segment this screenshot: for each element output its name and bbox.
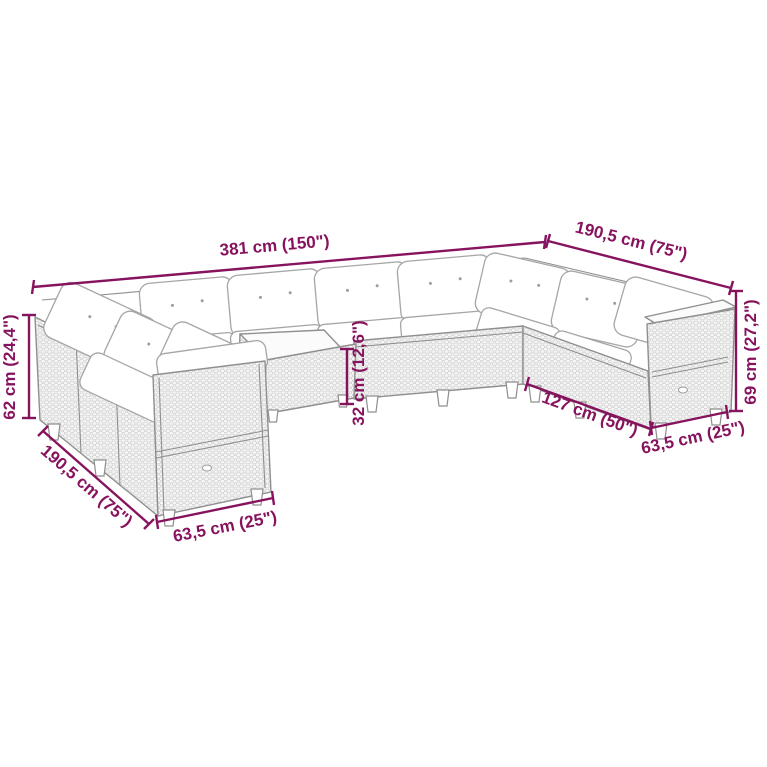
sofa-leg [94, 460, 106, 476]
dimension-label: 62 cm (24,4") [0, 314, 19, 419]
dimension-label: 63,5 cm (25") [171, 507, 278, 546]
sofa-leg [437, 390, 449, 406]
product-dimension-diagram: 381 cm (150") 190,5 cm (75") 69 cm (27,2… [0, 0, 767, 767]
dimension-label: 381 cm (150") [219, 231, 330, 260]
sofa-leg [506, 382, 518, 398]
dimension-label: 190,5 cm (75") [573, 218, 689, 264]
sofa-illustration [35, 251, 736, 526]
dimension-label: 69 cm (27,2") [741, 299, 760, 404]
dimension-label: 32 cm (12,6") [349, 320, 368, 425]
diagram-canvas: 381 cm (150") 190,5 cm (75") 69 cm (27,2… [0, 0, 767, 767]
back-row-front-panel [354, 326, 523, 412]
dimension-left-back-height: 62 cm (24,4") [0, 314, 36, 419]
table-leg [268, 410, 278, 422]
right-corner-section [645, 300, 736, 439]
